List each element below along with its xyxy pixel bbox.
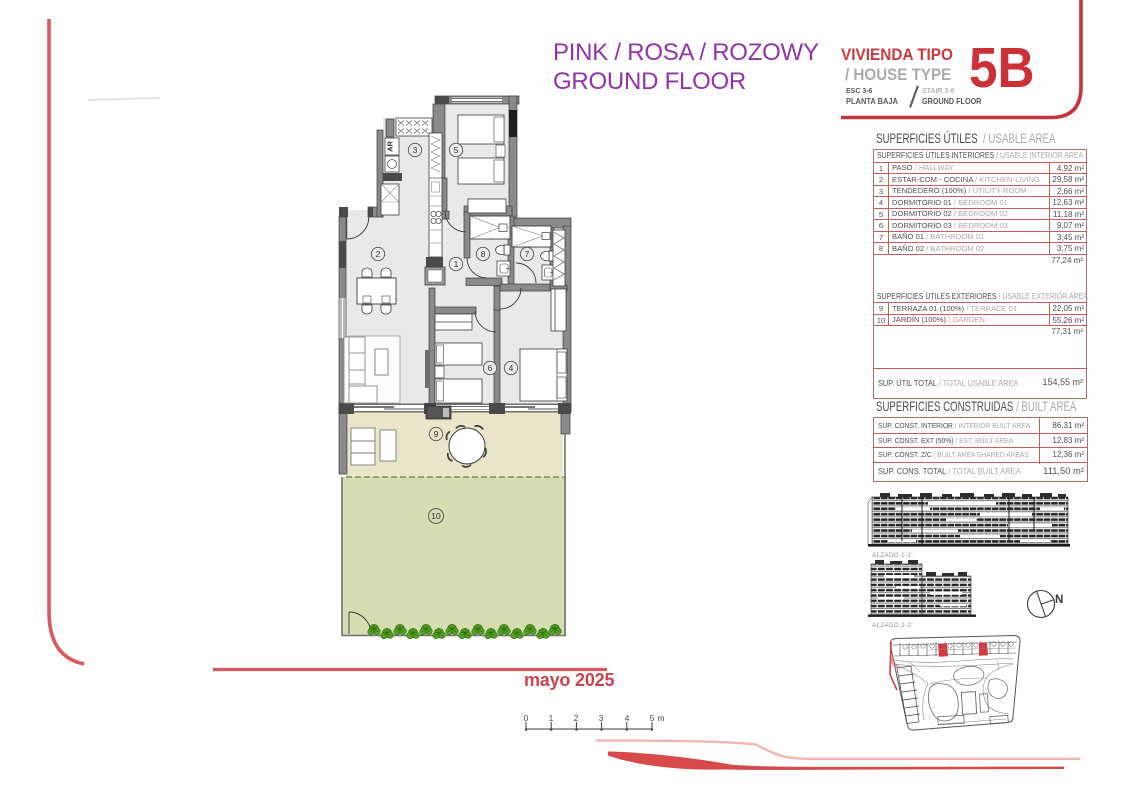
svg-text:4: 4 [625, 713, 630, 723]
svg-text:ALZADO 2-2': ALZADO 2-2' [872, 623, 913, 629]
svg-text:5: 5 [454, 145, 459, 155]
svg-text:1: 1 [549, 713, 554, 723]
svg-text:ALZADO 1-1': ALZADO 1-1' [872, 553, 913, 559]
svg-text:0: 0 [524, 713, 529, 723]
svg-text:8: 8 [481, 249, 486, 259]
svg-text:4: 4 [509, 363, 514, 373]
svg-text:N: N [1055, 594, 1063, 606]
svg-text:3: 3 [599, 713, 604, 723]
svg-text:9: 9 [434, 429, 439, 439]
svg-text:6: 6 [488, 363, 493, 373]
svg-text:2: 2 [574, 713, 579, 723]
svg-text:5: 5 [650, 713, 655, 723]
svg-text:1: 1 [454, 259, 459, 269]
svg-text:m: m [657, 713, 664, 723]
svg-text:3: 3 [413, 145, 418, 155]
svg-text:7: 7 [525, 249, 530, 259]
svg-text:10: 10 [431, 511, 441, 521]
svg-text:AR: AR [386, 141, 395, 152]
svg-text:2: 2 [376, 249, 381, 259]
